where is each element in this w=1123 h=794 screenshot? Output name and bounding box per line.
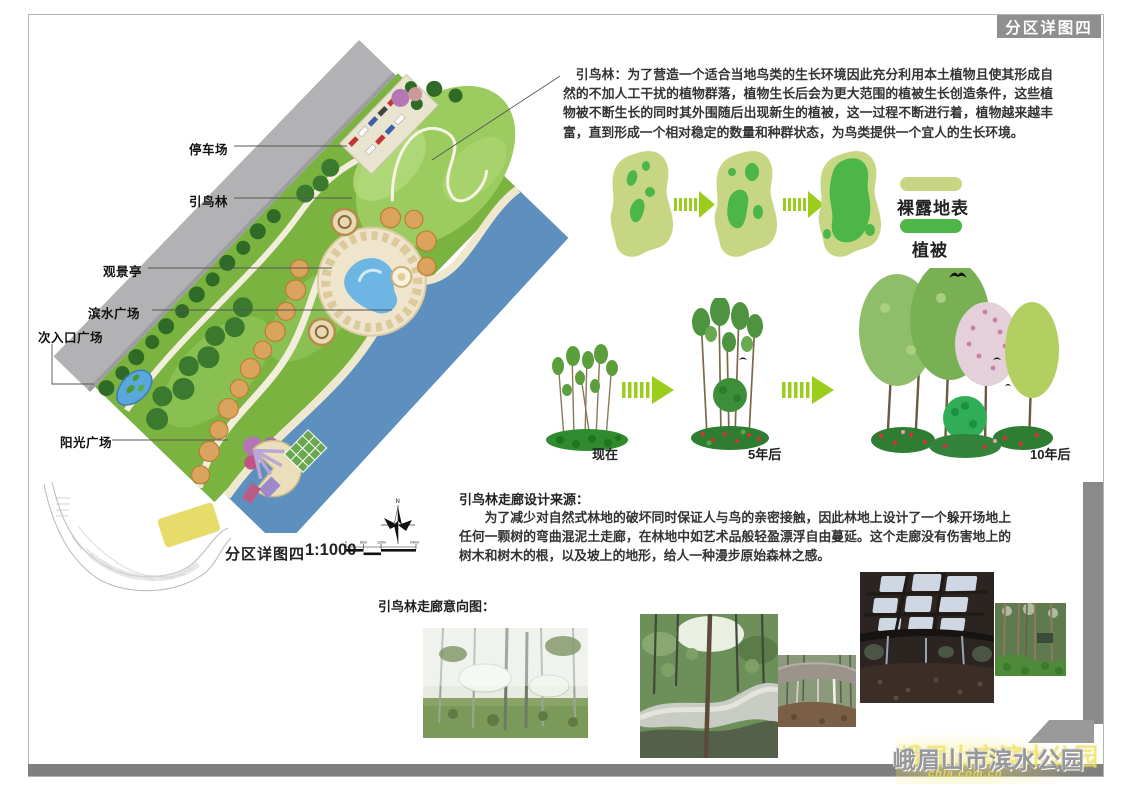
key-map-highlight (157, 502, 221, 548)
legend-bare-ground-label: 裸露地表 (897, 194, 969, 219)
legend-vegetation-swatch (900, 219, 962, 233)
photo-misty-forest-treehouses (423, 628, 588, 738)
patch-evolution-diagram (600, 146, 890, 264)
compass-icon: N (379, 496, 417, 548)
flying-bird-icon (948, 268, 968, 281)
svg-text:N: N (396, 499, 400, 505)
gallery-heading: 引鸟林走廊意向图： (378, 596, 495, 615)
watermark-domain: chla.com.cn (928, 768, 1003, 780)
bird-forest-description: 引鸟林：为了营造一个适合当地鸟类的生长环境因此充分利用本土植物且使其形成自然的不… (563, 65, 1053, 142)
photo-pine-forest-ferns (995, 603, 1066, 676)
patch-stage-2 (715, 151, 777, 257)
patch-stage-3 (819, 151, 881, 257)
arrow-icon (674, 191, 715, 218)
presentation-board: 分区详图四 (0, 0, 1123, 794)
right-gray-bar (1083, 482, 1103, 724)
growth-arrow-1 (622, 376, 678, 404)
corridor-heading: 引鸟林走廊设计来源： (459, 489, 589, 508)
bird-icon (739, 358, 747, 361)
svg-text:0: 0 (345, 540, 347, 544)
trees-5-years (685, 298, 775, 453)
svg-text:60m: 60m (360, 540, 367, 544)
plan-label-pavilion: 观景亭 (103, 261, 142, 280)
key-map (42, 476, 232, 606)
bird-icon (1005, 384, 1011, 386)
legend-bare-ground-swatch (900, 177, 962, 191)
key-map-caption: 分区详图四 (225, 543, 305, 564)
arrow-icon (783, 191, 824, 218)
plan-label-secondary-entrance: 次入口广场 (38, 327, 103, 346)
photo-curving-concrete-walkway (640, 614, 778, 758)
trees-now (540, 340, 635, 452)
plan-label-bird-forest: 引鸟林 (189, 191, 228, 210)
trees-10-years (845, 268, 1060, 463)
plan-label-parking: 停车场 (189, 139, 228, 158)
sheet-tag: 分区详图四 (997, 15, 1101, 38)
legend-vegetation-label: 植被 (912, 236, 948, 261)
photo-concrete-canopy-pavilion (778, 655, 856, 727)
timeline-label-10yr: 10年后 (1030, 444, 1070, 463)
timeline-label-5yr: 5年后 (748, 444, 781, 463)
timeline-label-now: 现在 (592, 444, 618, 463)
patch-stage-1 (611, 151, 673, 257)
corridor-body: 为了减少对自然式林地的破坏同时保证人与鸟的亲密接触，因此林地上设计了一个躲开场地… (459, 508, 1011, 566)
photo-canopy-underside-skylights (860, 572, 994, 703)
plan-label-waterfront-plaza: 滨水广场 (88, 303, 140, 322)
site-plan (35, 28, 580, 533)
plan-label-sunshine-plaza: 阳光广场 (60, 432, 112, 451)
sheet-tag-label: 分区详图四 (1005, 16, 1093, 38)
growth-arrow-2 (782, 376, 838, 404)
